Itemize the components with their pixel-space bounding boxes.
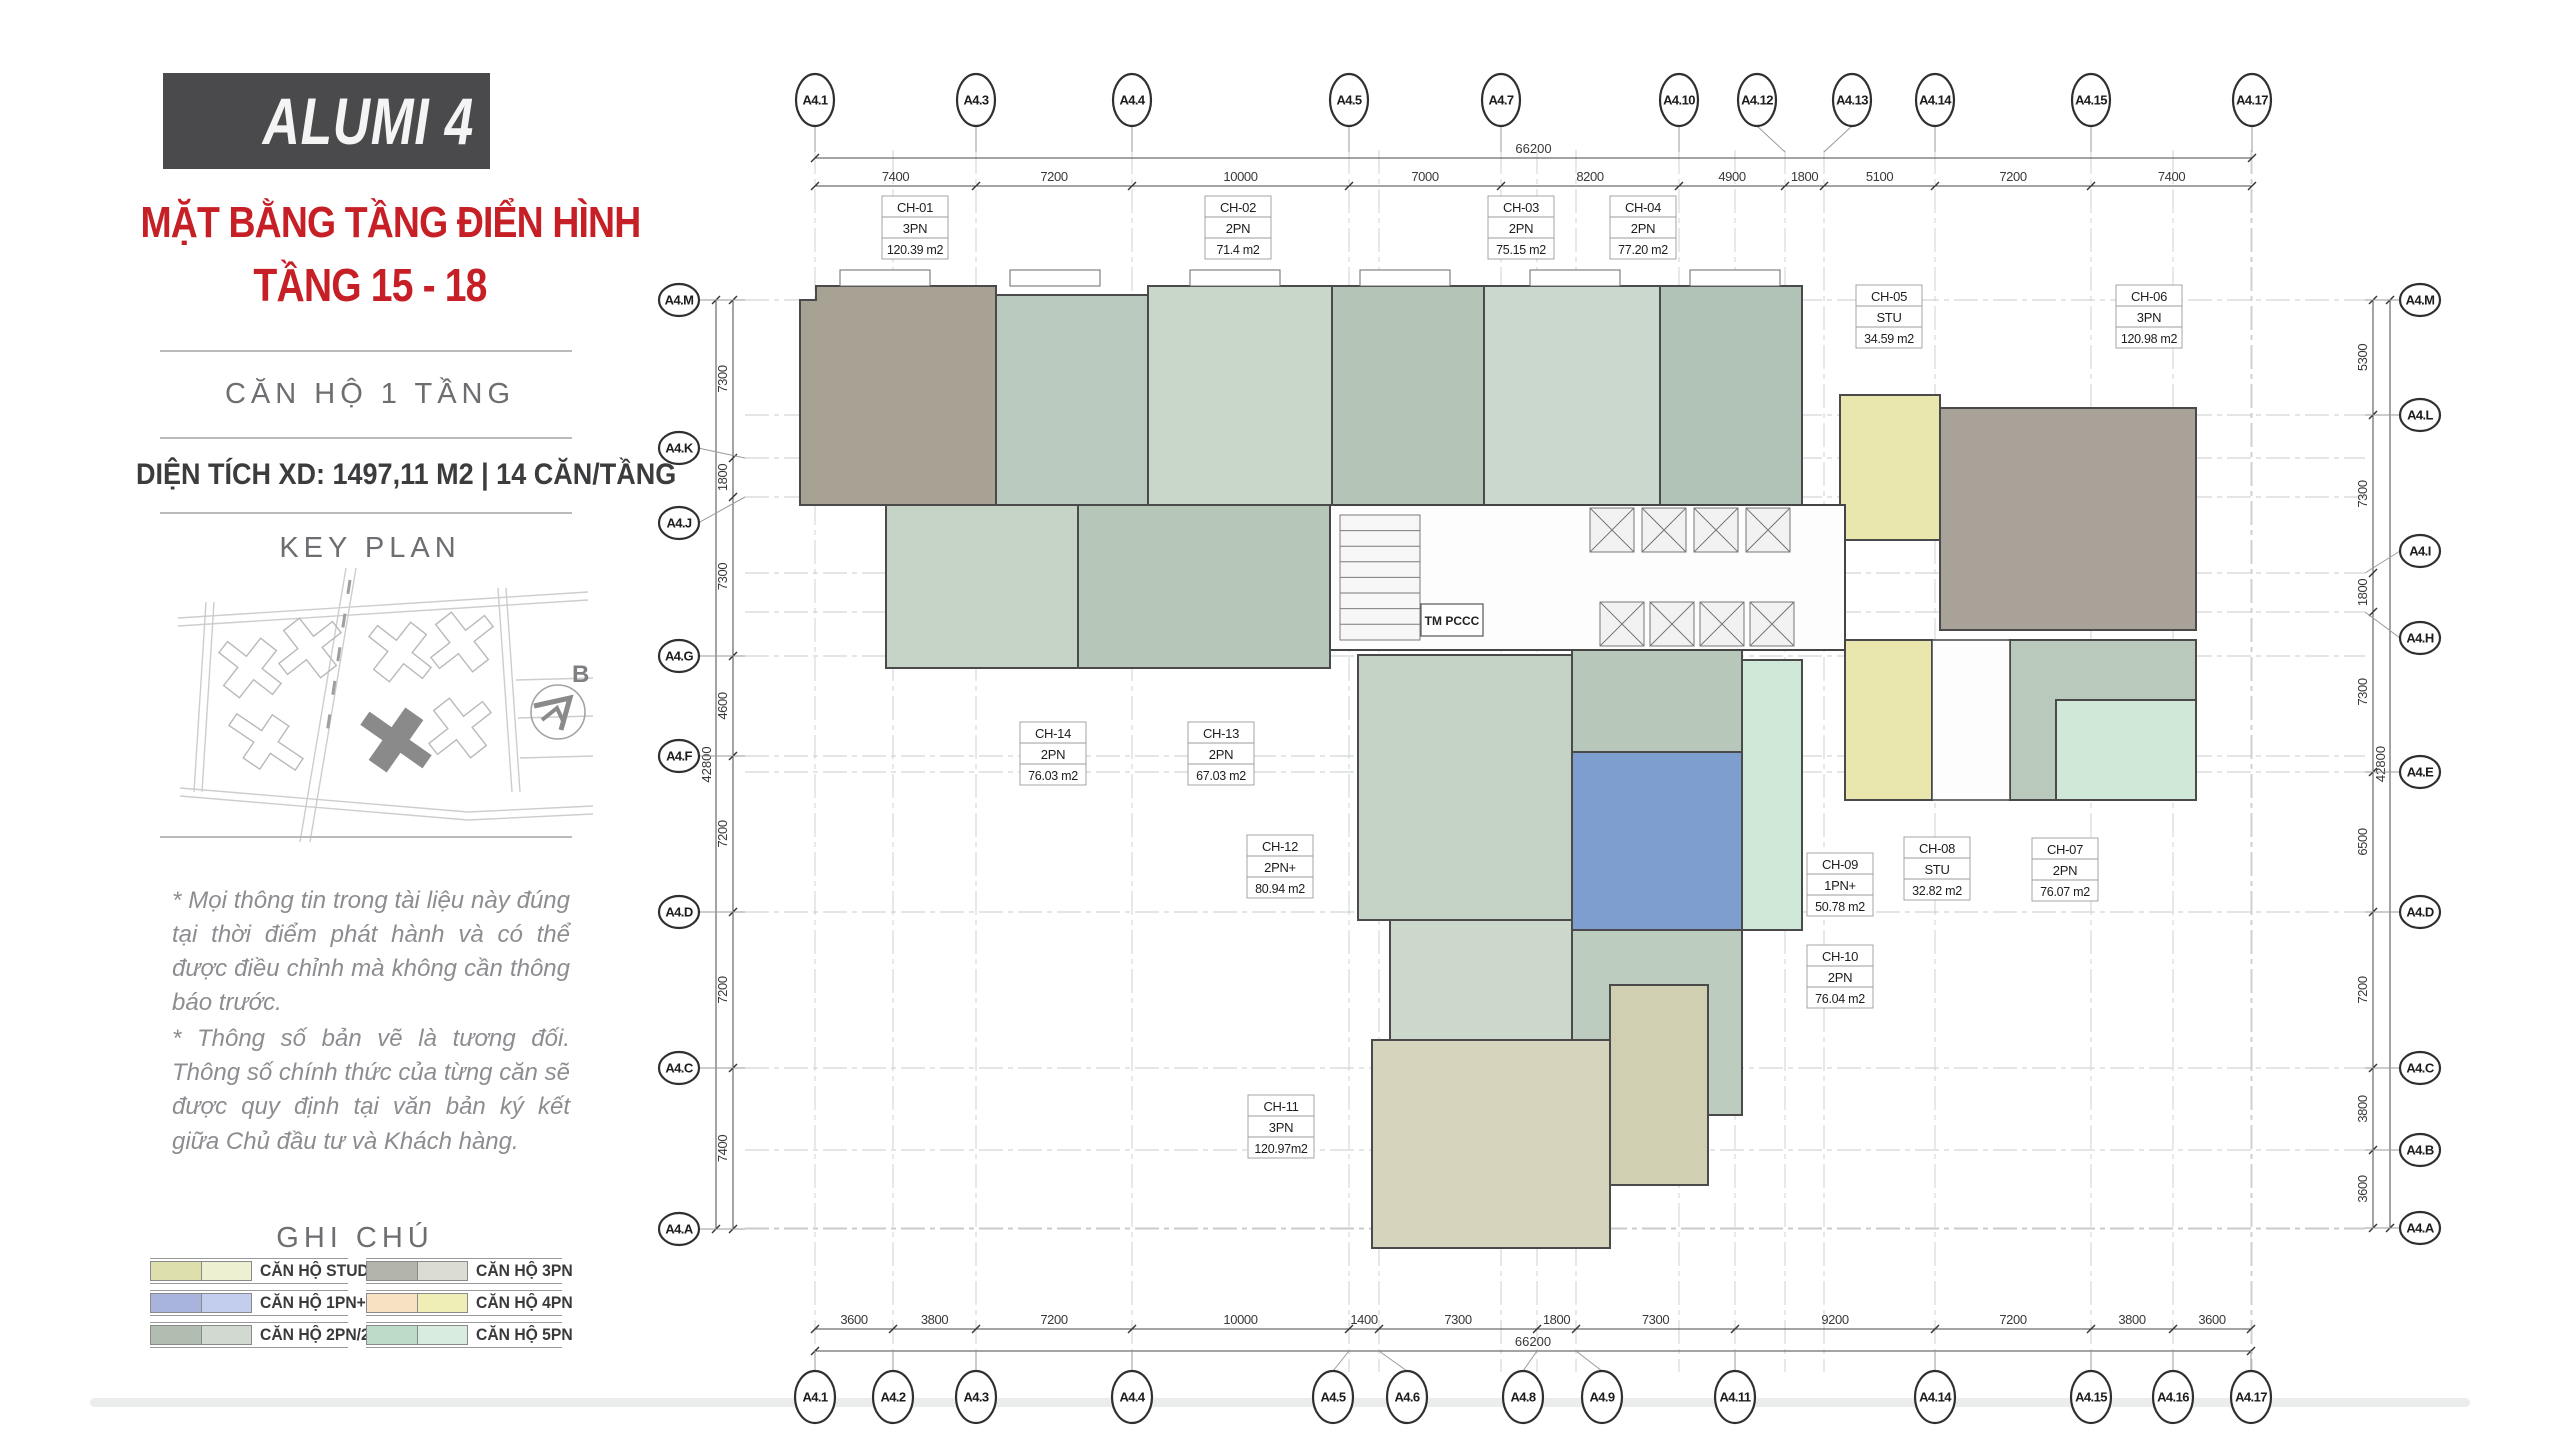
grid-axis-bubble: A4.M (2400, 284, 2440, 316)
unit-area-ch-03 (1332, 286, 1484, 505)
unit-label-ch-01: CH-013PN120.39 m2 (882, 196, 948, 259)
dimension-value: 7200 (1999, 169, 2026, 184)
grid-axis-label: A4.C (2406, 1061, 2434, 1076)
grid-axis-bubble: A4.6 (1387, 1371, 1427, 1423)
unit-id: CH-07 (2047, 842, 2083, 857)
unit-type: 2PN (1041, 747, 1065, 762)
dimension-value: 7200 (715, 820, 730, 847)
grid-axis-bubble: A4.14 (1915, 1371, 1955, 1423)
elevator-icon (1642, 508, 1686, 552)
dimension-value: 3600 (2198, 1312, 2225, 1327)
unit-label-ch-06: CH-063PN120.98 m2 (2116, 285, 2182, 348)
elevator-icon (1600, 602, 1644, 646)
dimension-value: 1800 (2355, 579, 2370, 606)
dimension-value: 7200 (715, 976, 730, 1003)
unit-id: CH-06 (2131, 289, 2167, 304)
grid-axis-bubble: A4.1 (795, 1371, 835, 1423)
dimension-value: 10000 (1223, 169, 1257, 184)
unit-area: 32.82 m2 (1912, 884, 1962, 898)
unit-label-ch-03: CH-032PN75.15 m2 (1488, 196, 1554, 259)
unit-label-ch-10: CH-102PN76.04 m2 (1807, 945, 1873, 1008)
elevator-icon (1700, 602, 1744, 646)
unit-id: CH-10 (1822, 949, 1858, 964)
grid-axis-bubble: A4.17 (2233, 74, 2271, 126)
dimension-value: 7400 (2158, 169, 2185, 184)
grid-axis-bubble: A4.16 (2153, 1371, 2193, 1423)
dimension-value: 8200 (1576, 169, 1603, 184)
grid-axis-label: A4.1 (802, 1390, 827, 1405)
unit-type: 2PN (1226, 221, 1250, 236)
grid-axis-bubble: A4.E (2400, 756, 2440, 788)
grid-axis-label: A4.G (665, 649, 693, 664)
grid-axis-bubble: A4.5 (1313, 1371, 1353, 1423)
grid-axis-label: A4.11 (1720, 1390, 1751, 1405)
grid-axis-bubble: A4.12 (1738, 74, 1776, 126)
grid-axis-bubble: A4.10 (1660, 74, 1698, 126)
elevator-icon (1650, 602, 1694, 646)
grid-axis-label: A4.1 (802, 93, 827, 108)
unit-label-ch-02: CH-022PN71.4 m2 (1205, 196, 1271, 259)
grid-axis-bubble: A4.7 (1482, 74, 1520, 126)
unit-type: 3PN (1269, 1120, 1293, 1135)
unit-area-ch-13 (1078, 505, 1330, 668)
grid-axis-bubble: A4.A (2400, 1212, 2440, 1244)
overall-dimension: 66200 (1515, 1334, 1551, 1349)
unit-id: CH-02 (1220, 200, 1256, 215)
unit-type: 3PN (2137, 310, 2161, 325)
dimension-value: 7300 (1444, 1312, 1471, 1327)
unit-label-ch-09: CH-091PN+50.78 m2 (1807, 853, 1873, 916)
dimension-value: 1400 (1350, 1312, 1377, 1327)
unit-area: 76.04 m2 (1815, 992, 1865, 1006)
unit-id: CH-14 (1035, 726, 1071, 741)
unit-area-ch-14 (886, 505, 1078, 668)
grid-axis-label: A4.A (665, 1222, 693, 1237)
grid-axis-bubble: A4.15 (2072, 74, 2110, 126)
unit-area: 120.97m2 (1254, 1142, 1308, 1156)
unit-id: CH-01 (897, 200, 933, 215)
unit-type: STU (1924, 862, 1949, 877)
unit-area-ch-06 (1940, 408, 2196, 630)
dimension-value: 7300 (1642, 1312, 1669, 1327)
grid-axis-bubble: A4.3 (957, 74, 995, 126)
grid-axis-label: A4.17 (2235, 1390, 2267, 1405)
grid-axis-label: A4.M (2406, 293, 2435, 308)
grid-axis-label: A4.14 (1919, 93, 1952, 108)
unit-area: 75.15 m2 (1496, 243, 1546, 257)
grid-axis-label: A4.16 (2157, 1390, 2189, 1405)
dimension-value: 3600 (840, 1312, 867, 1327)
unit-id: CH-13 (1203, 726, 1239, 741)
unit-type: 2PN (1209, 747, 1233, 762)
unit-label-ch-13: CH-132PN67.03 m2 (1188, 722, 1254, 785)
grid-axis-bubble: A4.11 (1715, 1371, 1755, 1423)
dimension-value: 7200 (2355, 976, 2370, 1003)
unit-id: CH-04 (1625, 200, 1661, 215)
grid-axis-label: A4.4 (1119, 93, 1145, 108)
balconies (840, 270, 1780, 286)
unit-area-zone-2pn (1148, 286, 1332, 505)
dimension-value: 4600 (715, 692, 730, 719)
grid-axis-label: A4.D (2406, 905, 2433, 920)
fire-room-label: TM PCCC (1421, 604, 1483, 636)
unit-area-ch-05 (1840, 395, 1940, 540)
overall-dimension: 66200 (1515, 141, 1551, 156)
dimension-value: 10000 (1223, 1312, 1257, 1327)
grid-axis-label: A4.5 (1320, 1390, 1345, 1405)
unit-id: CH-12 (1262, 839, 1298, 854)
grid-axis-bubble: A4.15 (2071, 1371, 2111, 1423)
grid-axis-bubble: A4.G (659, 640, 699, 672)
grid-axis-bubble: A4.2 (873, 1371, 913, 1423)
grid-axis-label: A4.12 (1741, 93, 1773, 108)
grid-axis-bubble: A4.L (2400, 399, 2440, 431)
unit-area-ch-02 (996, 295, 1148, 505)
fire-room-text: TM PCCC (1425, 614, 1480, 628)
grid-axis-label: A4.K (665, 441, 693, 456)
unit-area: 120.39 m2 (887, 243, 944, 257)
dimension-value: 3800 (2118, 1312, 2145, 1327)
unit-type: 2PN (1828, 970, 1852, 985)
unit-area-ch-09 (1572, 752, 1742, 930)
unit-id: CH-09 (1822, 857, 1858, 872)
grid-axis-bubble: A4.8 (1503, 1371, 1543, 1423)
grid-axis-label: A4.A (2406, 1221, 2434, 1236)
unit-type: 2PN (1631, 221, 1655, 236)
dimension-value: 7300 (2355, 678, 2370, 705)
grid-axis-bubble: A4.1 (796, 74, 834, 126)
grid-axis-label: A4.15 (2075, 1390, 2107, 1405)
unit-area-zone-3pn (1610, 985, 1708, 1185)
floorplan-sheet: ALUMI 4 MẶT BẰNG TẦNG ĐIỂN HÌNH TẦNG 15 … (0, 0, 2560, 1441)
grid-axis-bubble: A4.M (659, 284, 699, 316)
grid-axis-label: A4.14 (1919, 1390, 1952, 1405)
dimension-value: 7200 (1040, 169, 1067, 184)
unit-area: 34.59 m2 (1864, 332, 1914, 346)
unit-id: CH-03 (1503, 200, 1539, 215)
grid-axis-label: A4.J (666, 516, 691, 531)
grid-axis-bubble: A4.13 (1833, 74, 1871, 126)
dimension-value: 9200 (1821, 1312, 1848, 1327)
unit-area: 120.98 m2 (2121, 332, 2178, 346)
grid-axis-label: A4.F (666, 749, 692, 764)
unit-area-ch-01 (800, 286, 996, 505)
unit-label-ch-11: CH-113PN120.97m2 (1248, 1095, 1314, 1158)
dimension-value: 5300 (2355, 344, 2370, 371)
unit-id: CH-05 (1871, 289, 1907, 304)
dimension-value: 7300 (715, 365, 730, 392)
grid-axis-label: A4.4 (1119, 1390, 1145, 1405)
grid-axis-bubble: A4.I (2400, 535, 2440, 567)
grid-axis-label: A4.15 (2075, 93, 2107, 108)
unit-area-ch-08 (1845, 640, 1932, 800)
unit-area: 71.4 m2 (1216, 243, 1259, 257)
grid-axis-label: A4.6 (1394, 1390, 1419, 1405)
grid-axis-bubble: A4.A (659, 1213, 699, 1245)
grid-axis-label: A4.2 (880, 1390, 905, 1405)
unit-area-ch-11 (1372, 1040, 1610, 1248)
elevator-icon (1590, 508, 1634, 552)
unit-area: 67.03 m2 (1196, 769, 1246, 783)
grid-axis-label: A4.M (665, 293, 694, 308)
dimension-value: 5100 (1866, 169, 1893, 184)
unit-id: CH-11 (1263, 1099, 1298, 1114)
dimension-value: 6500 (2355, 828, 2370, 855)
dimension-value: 3800 (921, 1312, 948, 1327)
unit-area-zone-5pn (1742, 660, 1802, 930)
grid-axis-label: A4.7 (1488, 93, 1513, 108)
grid-axis-label: A4.L (2407, 408, 2433, 423)
grid-axis-bubble: A4.C (2400, 1052, 2440, 1084)
grid-axis-bubble: A4.B (2400, 1134, 2440, 1166)
dimension-value: 3800 (2355, 1095, 2370, 1122)
unit-area: 50.78 m2 (1815, 900, 1865, 914)
grid-axis-bubble: A4.4 (1113, 74, 1151, 126)
grid-axis-bubble: A4.J (659, 507, 699, 539)
dimension-value: 7300 (715, 563, 730, 590)
grid-axis-bubble: A4.C (659, 1052, 699, 1084)
dimension-value: 7200 (1040, 1312, 1067, 1327)
elevator-icon (1750, 602, 1794, 646)
unit-type: STU (1876, 310, 1901, 325)
grid-axis-label: A4.9 (1589, 1390, 1614, 1405)
grid-axis-bubble: A4.D (659, 896, 699, 928)
grid-axis-label: A4.D (665, 905, 692, 920)
grid-axis-bubble: A4.4 (1112, 1371, 1152, 1423)
unit-type: 2PN+ (1264, 860, 1296, 875)
staircase (1340, 515, 1420, 640)
dimension-value: 7400 (715, 1135, 730, 1162)
unit-area-ch-04 (1484, 286, 1660, 505)
unit-label-ch-07: CH-072PN76.07 m2 (2032, 838, 2098, 901)
grid-axis-bubble: A4.H (2400, 622, 2440, 654)
unit-area-ch-12 (1358, 655, 1572, 920)
grid-axis-label: A4.13 (1836, 93, 1868, 108)
dimension-value: 1800 (1791, 169, 1818, 184)
unit-type: 1PN+ (1824, 878, 1856, 893)
unit-id: CH-08 (1919, 841, 1955, 856)
unit-label-ch-08: CH-08STU32.82 m2 (1904, 837, 1970, 900)
dimension-value: 3600 (2355, 1175, 2370, 1202)
grid-axis-bubble: A4.5 (1330, 74, 1368, 126)
grid-axis-label: A4.H (2406, 631, 2433, 646)
unit-area: 76.07 m2 (2040, 885, 2090, 899)
unit-type: 3PN (903, 221, 927, 236)
unit-area: 76.03 m2 (1028, 769, 1078, 783)
core-lobby (1932, 640, 2010, 800)
grid-axis-bubble: A4.D (2400, 896, 2440, 928)
grid-axis-label: A4.C (665, 1061, 693, 1076)
unit-label-ch-05: CH-05STU34.59 m2 (1856, 285, 1922, 348)
unit-label-ch-04: CH-042PN77.20 m2 (1610, 196, 1676, 259)
grid-axis-bubble: A4.9 (1582, 1371, 1622, 1423)
dimension-value: 7200 (1999, 1312, 2026, 1327)
unit-type: 2PN (2053, 863, 2077, 878)
dimension-value: 1800 (715, 464, 730, 491)
unit-area-zone-2pn (1572, 650, 1742, 752)
grid-axis-bubble: A4.K (659, 432, 699, 464)
grid-axis-label: A4.I (2409, 544, 2430, 559)
unit-type: 2PN (1509, 221, 1533, 236)
unit-area: 80.94 m2 (1255, 882, 1305, 896)
grid-axis-bubble: A4.F (659, 740, 699, 772)
dimension-value: 7300 (2355, 480, 2370, 507)
grid-axis-bubble: A4.17 (2231, 1371, 2271, 1423)
unit-area-zone-2pn (1390, 920, 1572, 1040)
grid-axis-label: A4.17 (2236, 93, 2268, 108)
grid-axis-label: A4.10 (1663, 93, 1695, 108)
grid-axis-bubble: A4.14 (1916, 74, 1954, 126)
overall-dimension: 42800 (2373, 746, 2388, 782)
unit-label-ch-12: CH-122PN+80.94 m2 (1247, 835, 1313, 898)
dimension-value: 7400 (882, 169, 909, 184)
grid-axis-label: A4.8 (1510, 1390, 1535, 1405)
unit-area-zone-5pn (2056, 700, 2196, 800)
grid-axis-label: A4.3 (963, 93, 988, 108)
floor-plan-drawing: TM PCCCCH-013PN120.39 m2CH-022PN71.4 m2C… (0, 0, 2560, 1441)
elevator-icon (1746, 508, 1790, 552)
elevator-icon (1694, 508, 1738, 552)
dimension-value: 7000 (1411, 169, 1438, 184)
dimension-value: 1800 (1543, 1312, 1570, 1327)
grid-axis-label: A4.E (2407, 765, 2434, 780)
overall-dimension: 42800 (699, 746, 714, 782)
unit-label-ch-14: CH-142PN76.03 m2 (1020, 722, 1086, 785)
grid-axis-label: A4.B (2406, 1143, 2433, 1158)
grid-axis-label: A4.3 (963, 1390, 988, 1405)
grid-axis-bubble: A4.3 (956, 1371, 996, 1423)
grid-axis-label: A4.5 (1336, 93, 1361, 108)
dimension-value: 4900 (1718, 169, 1745, 184)
unit-area: 77.20 m2 (1618, 243, 1668, 257)
